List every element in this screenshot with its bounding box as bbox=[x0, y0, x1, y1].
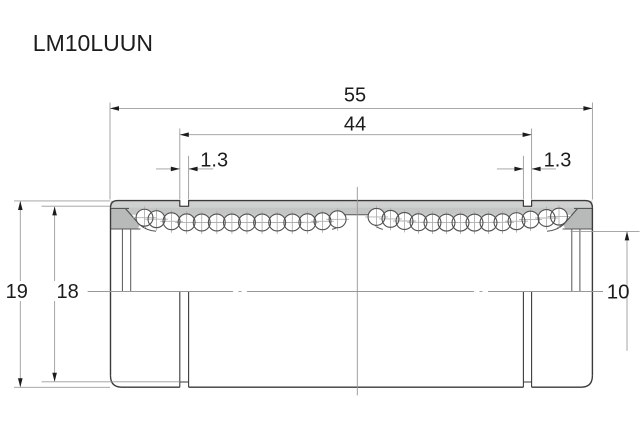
svg-text:10: 10 bbox=[607, 280, 630, 303]
svg-text:19: 19 bbox=[6, 281, 28, 303]
svg-text:1.3: 1.3 bbox=[200, 149, 228, 171]
svg-text:1.3: 1.3 bbox=[544, 149, 572, 171]
svg-text:44: 44 bbox=[344, 113, 366, 135]
svg-text:LM10LUUN: LM10LUUN bbox=[33, 30, 153, 56]
svg-text:55: 55 bbox=[344, 85, 366, 107]
svg-text:18: 18 bbox=[57, 281, 79, 303]
